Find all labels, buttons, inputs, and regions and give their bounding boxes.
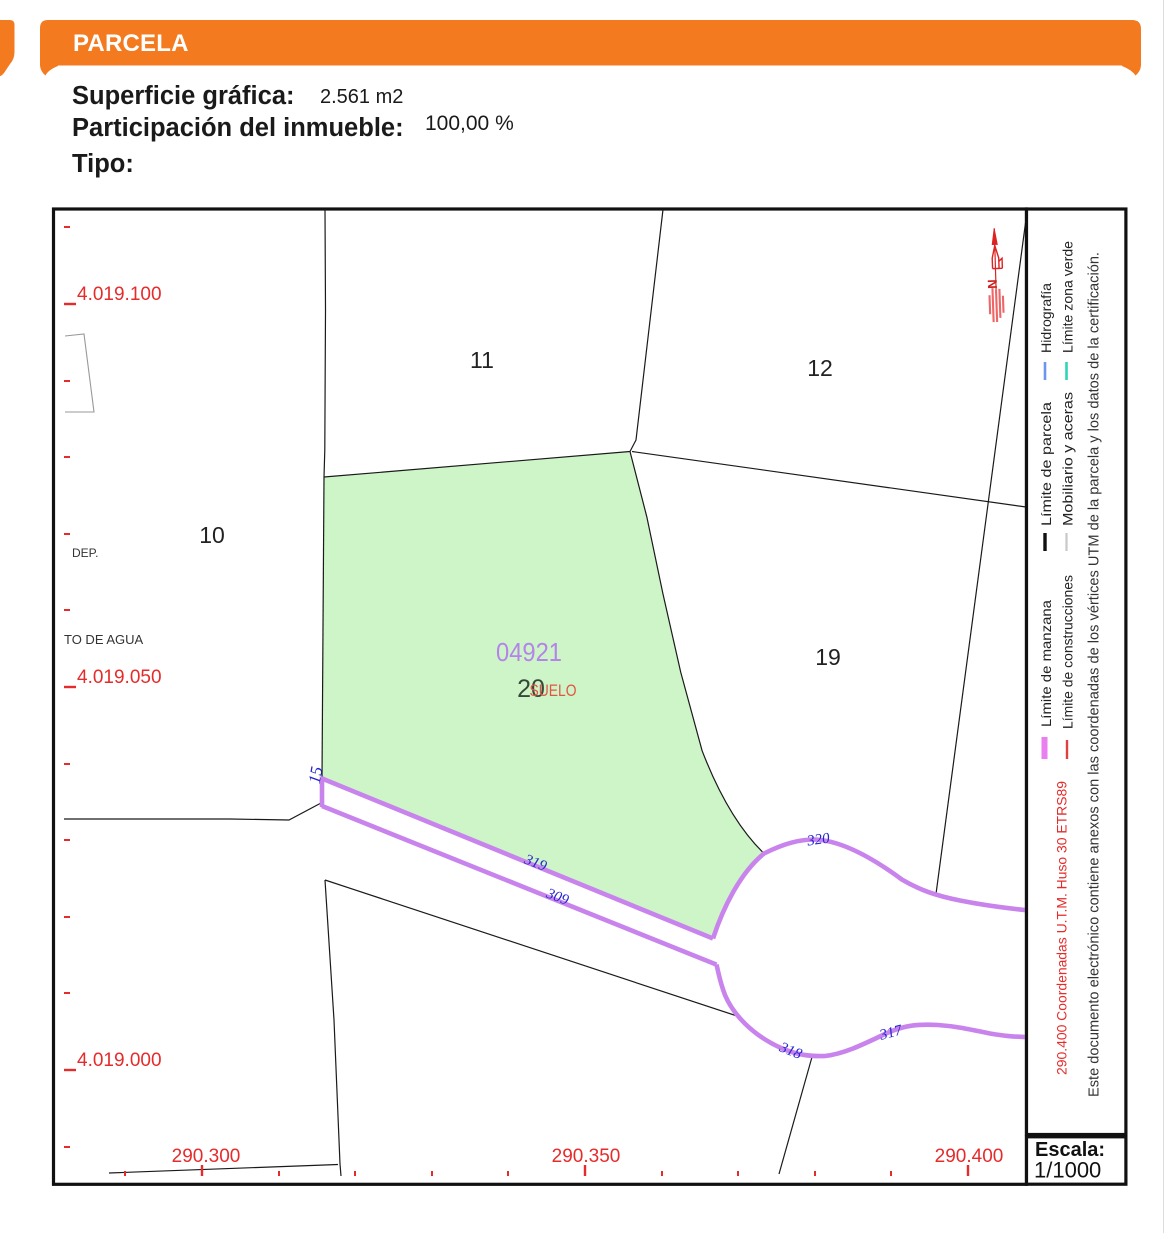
svg-text:12: 12 [807,355,833,381]
svg-text:1/1000: 1/1000 [1034,1158,1101,1183]
svg-text:Este documento electrónico con: Este documento electrónico contiene anex… [1087,252,1103,1097]
svg-text:15: 15 [305,765,327,785]
svg-text:290.350: 290.350 [552,1146,621,1167]
svg-text:4.019.050: 4.019.050 [77,667,162,688]
svg-text:Límite zona verde: Límite zona verde [1060,241,1076,353]
svg-text:Mobiliario y aceras: Mobiliario y aceras [1060,392,1076,526]
svg-text:Límite de parcela: Límite de parcela [1038,402,1054,526]
svg-text:10: 10 [199,522,225,548]
svg-text:290.300: 290.300 [172,1146,241,1167]
svg-text:Límite de manzana: Límite de manzana [1038,600,1054,727]
svg-text:TO DE AGUA: TO DE AGUA [64,632,144,647]
svg-text:290.400 Coordenadas U.T.M. Hus: 290.400 Coordenadas U.T.M. Huso 30 ETRS8… [1054,781,1070,1075]
svg-text:04921: 04921 [496,637,562,667]
svg-text:19: 19 [815,644,841,670]
svg-text:DEP.: DEP. [72,546,98,560]
svg-text:290.400: 290.400 [935,1146,1004,1167]
svg-text:N: N [985,279,1000,289]
svg-text:4.019.000: 4.019.000 [77,1050,162,1071]
svg-text:SUELO: SUELO [530,681,577,700]
svg-text:Límite de construcciones: Límite de construcciones [1060,575,1076,729]
svg-text:Hidrografía: Hidrografía [1038,283,1054,353]
svg-text:11: 11 [470,347,494,373]
svg-text:4.019.100: 4.019.100 [77,284,162,305]
svg-text:320: 320 [805,830,831,849]
